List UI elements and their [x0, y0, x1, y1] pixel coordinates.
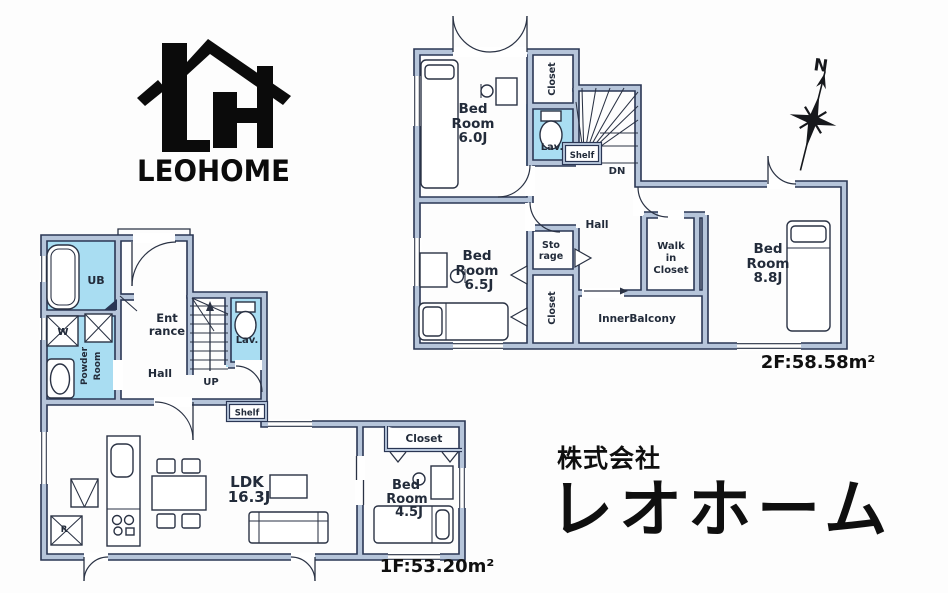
bedroom-c-label-1: Bed: [753, 241, 782, 257]
storage-label-2: rage: [539, 251, 563, 262]
bedroom-1f-size: 4.5J: [395, 505, 423, 520]
refrigerator-label: R: [61, 525, 68, 535]
pantry-box-icon: [71, 479, 98, 507]
wic-label-2: in: [666, 253, 677, 264]
company-name-block: 株式会社 レオホーム: [550, 444, 893, 546]
unit-bath-label: UB: [87, 274, 104, 287]
lavatory-2f-label: Lav.: [541, 142, 564, 153]
inner-balcony-label: InnerBalcony: [598, 313, 676, 325]
wic-label-3: Closet: [653, 265, 688, 276]
bedroom-1f-label-1: Bed: [392, 478, 420, 493]
floor1-area-label: 1F:53.20m²: [380, 556, 495, 577]
stairs-up-label: UP: [203, 377, 218, 388]
north-compass-icon: N: [777, 55, 848, 176]
hall-2f-label: Hall: [585, 219, 608, 231]
north-label: N: [812, 55, 829, 77]
closet-1f-label: Closet: [406, 433, 443, 445]
house-icon: [137, 39, 291, 152]
closet-top-label: Closet: [547, 62, 558, 96]
powder-room-label-1: Powder: [80, 346, 90, 385]
toilet-icon-1f: [235, 302, 256, 339]
wic-label-1: Walk: [657, 241, 685, 252]
entrance-label-1: Ent: [156, 311, 178, 325]
storage-label-1: Sto: [542, 240, 560, 251]
bed-icon-65j: [419, 303, 508, 340]
wash-basin-icon: [47, 359, 74, 398]
bed-icon-88j: [787, 221, 830, 331]
lavatory-1f-label: Lav.: [236, 335, 259, 346]
linen-shelf-icon: [85, 314, 112, 342]
bedroom-b-label-1: Bed: [462, 248, 491, 264]
tv-board-icon: [270, 475, 307, 498]
bedroom-b-size: 6.5J: [465, 277, 494, 293]
dining-set-icon: [152, 459, 206, 528]
floor2-plan: Closet Lav. Shelf DN Hall Sto rage Close…: [413, 16, 876, 373]
washer-label: W: [57, 327, 68, 338]
entrance-label-2: rance: [149, 324, 185, 338]
company-prefix: 株式会社: [557, 444, 661, 473]
bedroom-c-size: 8.8J: [754, 270, 783, 286]
leohome-logo: LEOHOME: [137, 39, 291, 188]
bedroom-a-size: 6.0J: [459, 130, 488, 146]
floor2-area-label: 2F:58.58m²: [761, 352, 876, 373]
staircase-up-icon: [190, 298, 228, 371]
floor-plan-flyer: LEOHOME: [0, 0, 948, 593]
bedroom-a-label-1: Bed: [458, 101, 487, 117]
sofa-icon: [249, 512, 328, 543]
powder-room-label-2: Room: [93, 352, 103, 381]
shelf-2f-label: Shelf: [570, 151, 595, 161]
ldk-size: 16.3J: [228, 488, 271, 506]
bathtub-icon: [47, 245, 79, 309]
company-name: レオホーム: [550, 473, 893, 546]
stairs-down-label: DN: [609, 166, 626, 177]
shelf-1f-label: Shelf: [235, 409, 260, 419]
hall-1f-label: Hall: [148, 367, 172, 380]
flyer-canvas: LEOHOME: [0, 0, 948, 593]
kitchen-counter-icon: [107, 436, 140, 546]
closet-mid-label: Closet: [547, 291, 558, 325]
logo-wordmark: LEOHOME: [137, 154, 290, 188]
